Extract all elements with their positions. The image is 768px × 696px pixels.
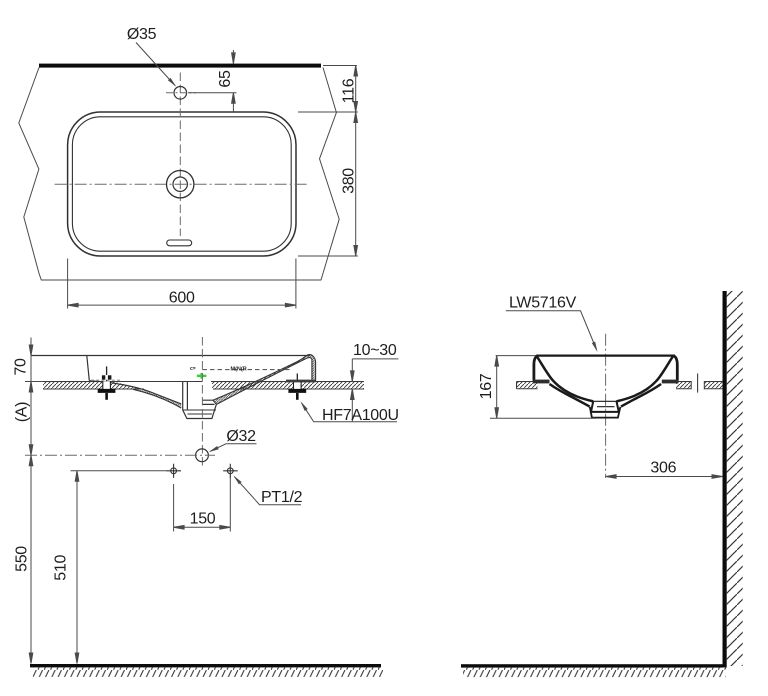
svg-text:167: 167 xyxy=(478,373,495,399)
svg-text:(A): (A) xyxy=(13,402,30,422)
svg-text:380: 380 xyxy=(340,168,357,194)
svg-text:600: 600 xyxy=(169,290,195,307)
svg-text:65: 65 xyxy=(217,70,234,88)
svg-text:150: 150 xyxy=(190,511,216,528)
svg-text:10~30: 10~30 xyxy=(353,342,397,359)
svg-text:M(N(R: M(N(R xyxy=(231,367,247,373)
svg-text:70: 70 xyxy=(13,358,30,376)
svg-text:Ø35: Ø35 xyxy=(127,26,157,43)
svg-text:550: 550 xyxy=(14,546,31,572)
svg-text:LW5716V: LW5716V xyxy=(509,295,577,312)
svg-text:Ø32: Ø32 xyxy=(226,428,256,445)
svg-text:306: 306 xyxy=(650,460,676,477)
svg-text:116: 116 xyxy=(340,78,357,103)
svg-text:c=: c= xyxy=(190,366,196,372)
svg-text:PT1/2: PT1/2 xyxy=(261,489,303,506)
svg-text:510: 510 xyxy=(53,555,70,581)
